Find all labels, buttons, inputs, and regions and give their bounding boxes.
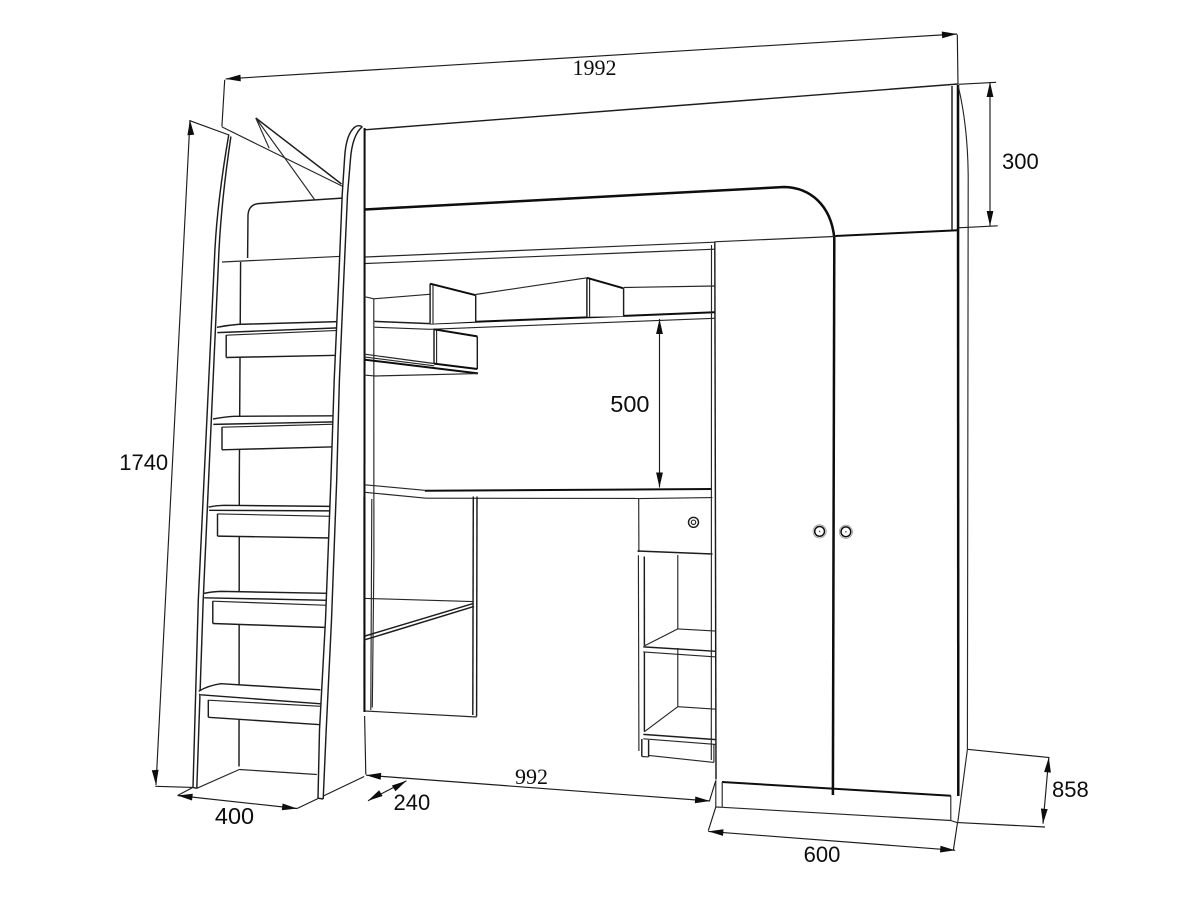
svg-text:1740: 1740 xyxy=(119,450,168,475)
svg-text:400: 400 xyxy=(215,803,254,829)
svg-text:500: 500 xyxy=(610,391,649,417)
svg-text:240: 240 xyxy=(394,790,431,815)
svg-text:858: 858 xyxy=(1052,777,1089,802)
svg-text:992: 992 xyxy=(515,764,548,789)
svg-text:600: 600 xyxy=(804,842,841,867)
svg-text:1992: 1992 xyxy=(573,55,617,80)
svg-text:300: 300 xyxy=(1002,149,1039,174)
